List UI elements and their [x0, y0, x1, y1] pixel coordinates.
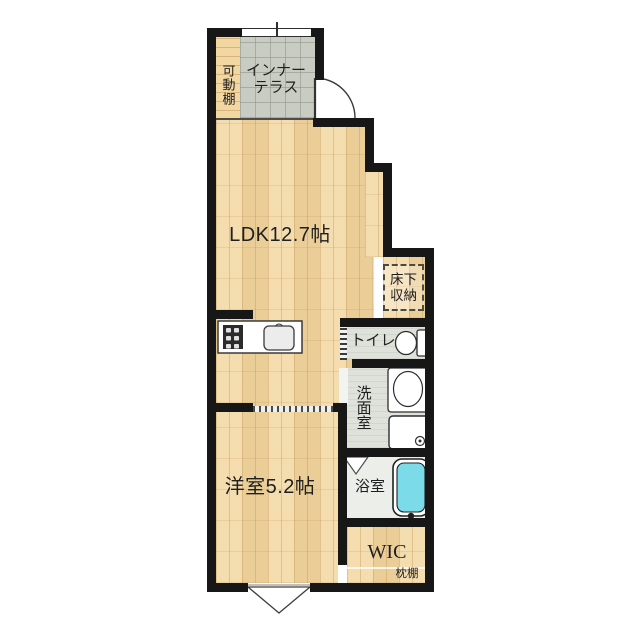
wall-top [207, 28, 242, 37]
inner-terrace-label: インナー テラス [236, 58, 316, 100]
underfloor-storage-label: 床下 収納 [383, 266, 424, 310]
kitchen-sink-icon [264, 326, 294, 350]
bathroom-door-icon [344, 457, 368, 474]
pillow-shelf-label: 枕棚 [388, 567, 426, 582]
toilet-label: トイレ [346, 331, 400, 351]
underfloor-storage-label-line1: 床下 [390, 272, 417, 288]
wall-washroom-bathroom [340, 448, 434, 457]
wall-bottom-right [310, 583, 434, 592]
fixtures-layer [0, 0, 640, 640]
washing-machine-drain-dot [419, 440, 422, 443]
inner-terrace-label-line1: インナー [246, 62, 306, 79]
washbasin-icon [394, 372, 423, 407]
inner-terrace-label-line2: テラス [254, 79, 299, 96]
wall-bathroom-wic [340, 518, 434, 527]
bedroom-label: 洋室5.2帖 [195, 473, 345, 501]
bedroom-sliding-door [253, 406, 335, 412]
entrance-door-arc [315, 78, 355, 118]
ldk-label: LDK12.7帖 [200, 221, 360, 249]
bottom-window-icon [248, 587, 310, 613]
wall-kitchen-stub [213, 310, 253, 319]
wall-bottom-left [207, 583, 248, 592]
wall-toilet-washroom [352, 359, 434, 368]
floorplan-canvas: 可動棚 インナー テラス LDK12.7帖 床下 収納 トイレ 洗面室 浴室 洋… [0, 0, 640, 640]
wic-label: WIC [360, 539, 414, 565]
bathtub-icon [397, 463, 425, 512]
wall-bedroom-divider [216, 403, 253, 412]
bathroom-label: 浴室 [348, 477, 392, 497]
wall-toilet-top [340, 318, 434, 327]
terrace-window-mullion [276, 22, 278, 37]
washroom-label: 洗面室 [352, 368, 374, 446]
wall-right-main [425, 248, 434, 592]
wall-terrace-right [315, 28, 324, 80]
wall-right-mid [383, 163, 392, 257]
underfloor-storage-label-line2: 収納 [390, 288, 417, 304]
